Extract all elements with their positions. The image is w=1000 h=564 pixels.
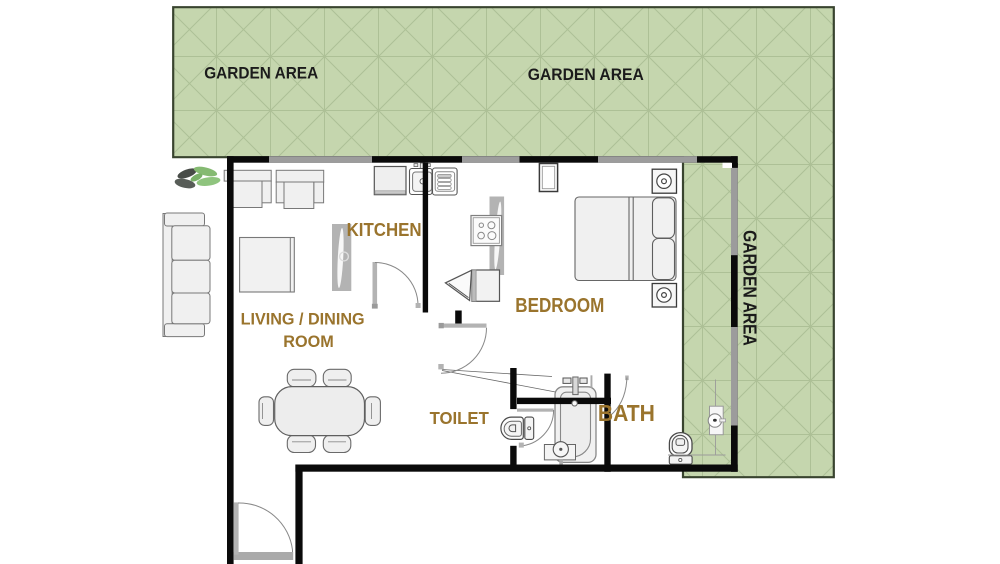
svg-text:LIVING / DINING: LIVING / DINING [241, 311, 365, 329]
svg-text:BEDROOM: BEDROOM [515, 294, 604, 317]
svg-text:KITCHEN: KITCHEN [347, 219, 422, 240]
svg-text:BATH: BATH [598, 400, 655, 426]
svg-text:GARDEN AREA: GARDEN AREA [528, 65, 644, 84]
svg-text:ROOM: ROOM [283, 333, 334, 351]
svg-text:GARDEN AREA: GARDEN AREA [740, 230, 761, 346]
svg-text:TOILET: TOILET [430, 408, 489, 428]
svg-text:GARDEN AREA: GARDEN AREA [204, 64, 318, 83]
